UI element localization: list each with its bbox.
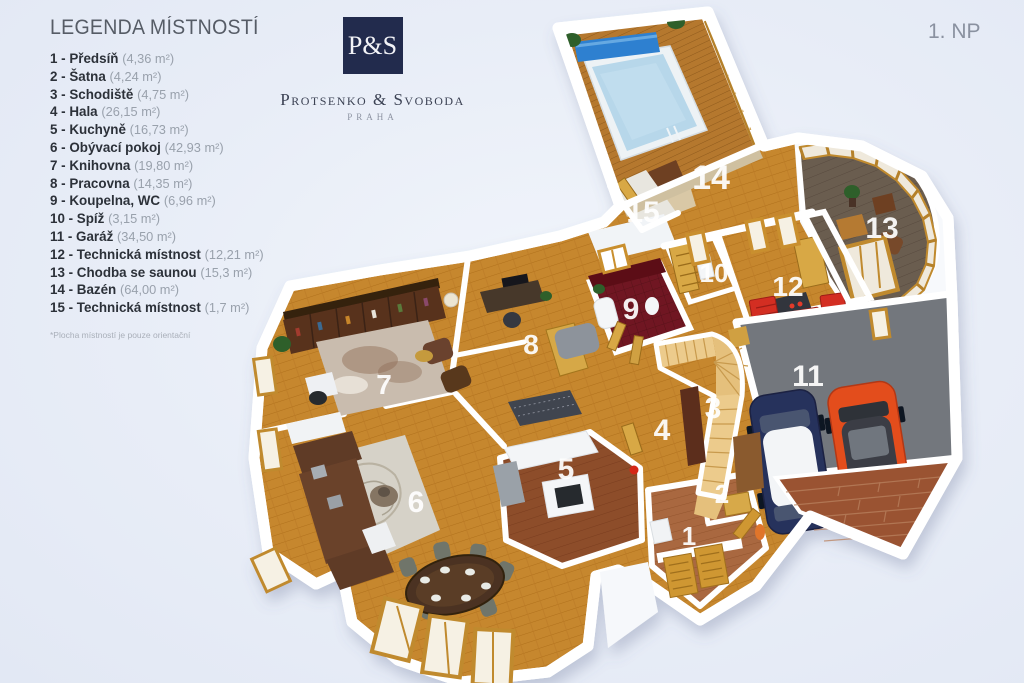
room-label-11: 11 bbox=[792, 360, 824, 393]
plant bbox=[844, 185, 860, 199]
house-body bbox=[252, 10, 958, 683]
chair bbox=[503, 312, 521, 328]
floorplan-render: 1 2 3 4 5 6 7 8 9 10 11 12 13 14 15 bbox=[0, 0, 1024, 683]
window bbox=[258, 429, 281, 471]
plant bbox=[540, 291, 552, 301]
room-label-9: 9 bbox=[623, 293, 640, 326]
window bbox=[254, 357, 277, 395]
room-label-15: 15 bbox=[626, 196, 659, 229]
room-label-12: 12 bbox=[772, 271, 803, 302]
fire-extinguisher bbox=[630, 466, 639, 475]
window bbox=[870, 309, 890, 339]
plant bbox=[273, 336, 291, 352]
room-label-7: 7 bbox=[376, 369, 392, 400]
floor-lamp bbox=[444, 293, 458, 307]
room-5-kitchen bbox=[493, 431, 642, 566]
chair bbox=[309, 391, 327, 405]
room-label-14: 14 bbox=[692, 159, 730, 197]
shoe-bench bbox=[650, 518, 672, 543]
room-label-2: 2 bbox=[715, 479, 729, 509]
porch bbox=[600, 562, 658, 648]
room-label-1: 1 bbox=[682, 521, 696, 551]
toilet bbox=[645, 297, 659, 315]
coffee-table bbox=[415, 350, 433, 362]
room-label-8: 8 bbox=[523, 329, 539, 360]
room-label-3: 3 bbox=[705, 392, 722, 425]
room-label-4: 4 bbox=[654, 414, 671, 447]
plant bbox=[593, 284, 605, 294]
room-label-13: 13 bbox=[865, 212, 898, 245]
frame bbox=[776, 214, 799, 247]
room-label-5: 5 bbox=[558, 453, 575, 486]
floorplan-page: LEGENDA MÍSTNOSTÍ 1 - Předsíň (4,36 m²)2… bbox=[0, 0, 1024, 683]
room-label-10: 10 bbox=[700, 258, 729, 288]
tall-cabinet bbox=[733, 432, 764, 493]
coat bbox=[755, 524, 765, 540]
room-label-6: 6 bbox=[408, 486, 425, 519]
